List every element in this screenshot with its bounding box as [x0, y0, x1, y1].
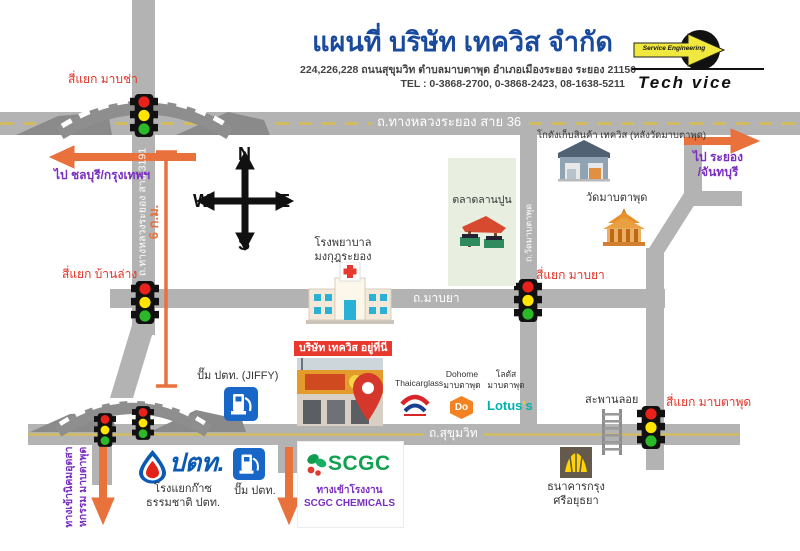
scgc-leaf-icon	[305, 452, 327, 480]
scgc-wordmark: SCGC	[328, 451, 391, 477]
compass-east: E	[278, 190, 290, 213]
label-company-here: บริษัท เทควิส อยู่ที่นี่	[294, 341, 392, 356]
gas-plant-line1: โรงแยกก๊าซ	[145, 483, 221, 497]
traffic-light-icon	[637, 406, 665, 449]
label-hospital: โรงพยาบาล มงกุฎระยอง	[308, 237, 378, 265]
traffic-light-icon	[94, 413, 116, 447]
industrial-line1: ทางเข้านิคมอุตสา	[62, 446, 76, 527]
label-intersection-mabtaphut: สี่แยก มาบตาพุด	[666, 395, 751, 410]
lotus-logo-word: Lotus	[487, 398, 522, 413]
label-gas-plant: โรงแยกก๊าซ ธรรมชาติ ปตท.	[145, 483, 221, 511]
label-intersection-mabya: สี่แยก มาบยา	[536, 268, 605, 283]
label-temple: วัดมาบตาพุด	[586, 192, 647, 206]
photo-door	[303, 400, 321, 424]
logo-rule	[632, 68, 764, 70]
photo-sign-panel	[305, 374, 345, 390]
label-overpass: สะพานลอย	[585, 394, 638, 408]
label-to-rayong: ไป ระยอง /จันทบุรี	[688, 150, 748, 180]
label-industrial-estate-entrance: ทางเข้านิคมอุตสา หกรรม มาบตาพุด	[62, 446, 90, 527]
traffic-light-icon	[130, 94, 158, 137]
company-address: 224,226,228 ถนนสุขุมวิท ตำบลมาบตาพุด อำเ…	[300, 64, 625, 77]
road-label-sukhumvit: ถ.สุขุมวิท	[424, 425, 483, 442]
label-scgc-entrance: ทางเข้าโรงงาน SCGC CHEMICALS	[300, 485, 399, 510]
thaicarglass-logo-icon	[400, 394, 430, 418]
road-label-mabya: ถ.มาบยา	[408, 290, 465, 307]
traffic-light-icon	[514, 279, 542, 322]
ladder-icon	[600, 409, 624, 455]
fuel-pump-icon	[224, 387, 258, 421]
label-jiffy: ปั๊ม ปตท. (JIFFY)	[197, 370, 278, 384]
road-label-wat: ถ.วัดมาบตาพุด	[522, 199, 535, 267]
hospital-icon	[306, 262, 394, 326]
lotus-line2: มาบตาพุด	[484, 380, 528, 391]
pin-icon	[351, 372, 385, 424]
photo-door	[327, 400, 345, 424]
warehouse-icon	[558, 140, 610, 182]
traffic-light-icon	[131, 281, 159, 324]
krungsri-logo-icon	[560, 447, 592, 478]
lotus-logo: Lotus's	[487, 398, 533, 414]
label-intersection-mabcha: สี่แยก มาบช่า	[68, 72, 138, 87]
label-market: ตลาดลานปูน	[448, 194, 516, 207]
label-to-chonburi: ไป ชลบุรี/กรุงเทพฯ	[54, 168, 150, 183]
dohome-line1: Dohome	[440, 369, 484, 380]
lotus-logo-s: s	[525, 398, 532, 413]
compass-south: S	[238, 233, 250, 256]
compass-west: W	[193, 190, 210, 213]
dohome-line2: มาบตาพุด	[440, 380, 484, 391]
to-rayong-line2: /จันทบุรี	[688, 165, 748, 180]
traffic-light-icon	[132, 406, 154, 440]
ptt-wordmark: ปตท.	[169, 448, 225, 479]
label-thaicarglass: Thaicarglass	[395, 378, 443, 389]
compass-north: N	[238, 143, 251, 166]
scgc-line2: SCGC CHEMICALS	[300, 498, 399, 511]
label-bank: ธนาคารกรุง ศรีอยุธยา	[541, 481, 611, 509]
dohome-logo-text: Do	[455, 402, 468, 413]
company-phone: TEL : 0-3868-2700, 0-3868-2423, 08-1638-…	[300, 78, 625, 91]
hospital-line1: โรงพยาบาล	[308, 237, 378, 251]
scgc-line1: ทางเข้าโรงงาน	[300, 485, 399, 498]
label-distance-6km: 6 ก.ม.	[146, 205, 162, 240]
bank-line2: ศรีอยุธยา	[541, 495, 611, 509]
distance-measure-line	[156, 152, 177, 386]
industrial-line2: หกรรม มาบตาพุด	[76, 446, 90, 527]
page-title: แผนที่ บริษัท เทควิส จำกัด	[300, 26, 625, 60]
label-lotus: โลตัส มาบตาพุด	[484, 369, 528, 390]
ptt-logo-icon	[139, 450, 166, 484]
market-icon	[456, 213, 510, 253]
logo-tagline: Service Engineering	[640, 45, 708, 53]
hospital-line2: มงกุฎระยอง	[308, 251, 378, 265]
label-intersection-banlang: สี่แยก บ้านล่าง	[62, 267, 137, 282]
label-dohome: Dohome มาบตาพุด	[440, 369, 484, 390]
fuel-pump-icon	[233, 448, 265, 480]
gas-plant-line2: ธรรมชาติ ปตท.	[145, 497, 221, 511]
label-warehouse: โกดังเก็บสินค้า เทควิส (หลังวัดมาบตาพุด)	[537, 130, 685, 142]
logo-brand: Tech vice	[638, 72, 733, 93]
label-ptt-station: ปั๊ม ปตท.	[234, 485, 276, 499]
road-label-highway36: ถ.ทางหลวงระยอง สาย 36	[372, 113, 526, 131]
bank-line1: ธนาคารกรุง	[541, 481, 611, 495]
lotus-line1: โลตัส	[484, 369, 528, 380]
temple-icon	[600, 208, 648, 246]
to-rayong-line1: ไป ระยอง	[688, 150, 748, 165]
map-page: แผนที่ บริษัท เทควิส จำกัด 224,226,228 ถ…	[0, 0, 800, 551]
